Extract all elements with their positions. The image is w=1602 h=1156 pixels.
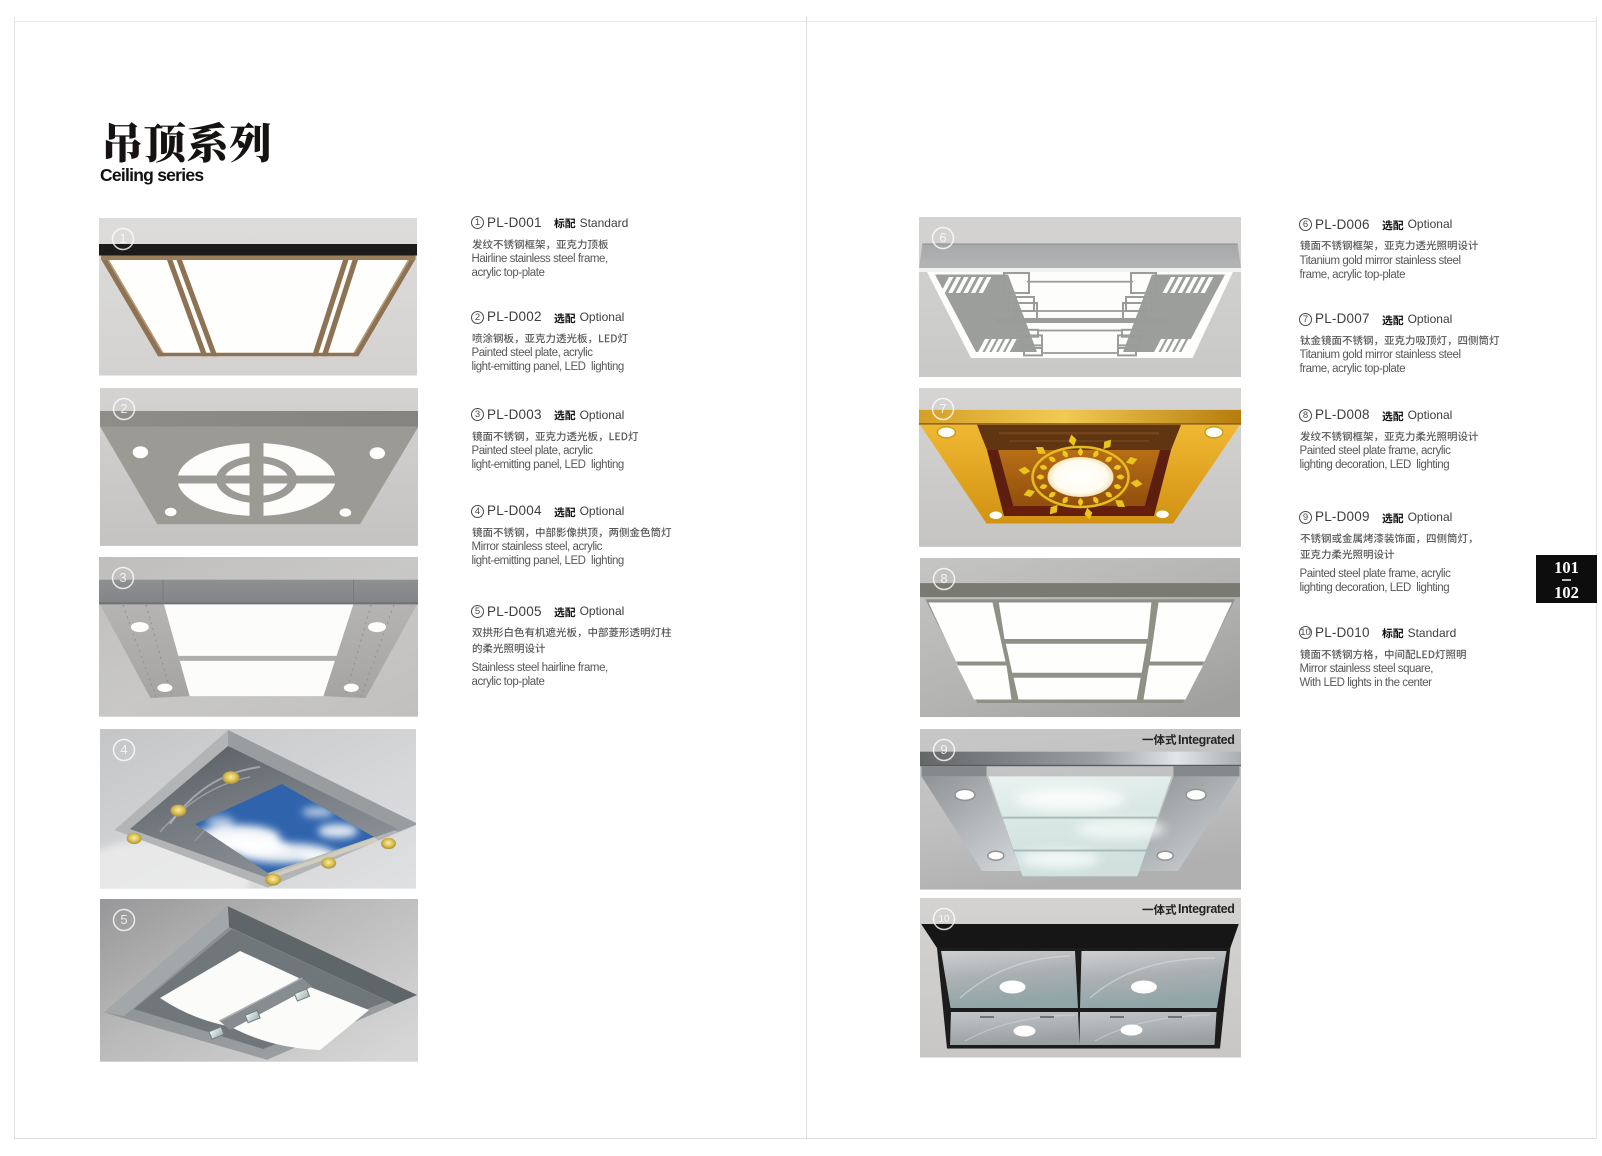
svg-text:4: 4: [120, 742, 127, 757]
svg-text:2: 2: [120, 401, 127, 416]
svg-text:8: 8: [940, 571, 947, 586]
svg-text:9: 9: [940, 742, 947, 757]
svg-text:5: 5: [120, 912, 127, 927]
svg-text:3: 3: [119, 570, 126, 585]
svg-text:1: 1: [119, 231, 126, 246]
svg-text:7: 7: [939, 401, 946, 416]
svg-text:6: 6: [939, 230, 946, 245]
svg-text:10: 10: [938, 914, 950, 925]
